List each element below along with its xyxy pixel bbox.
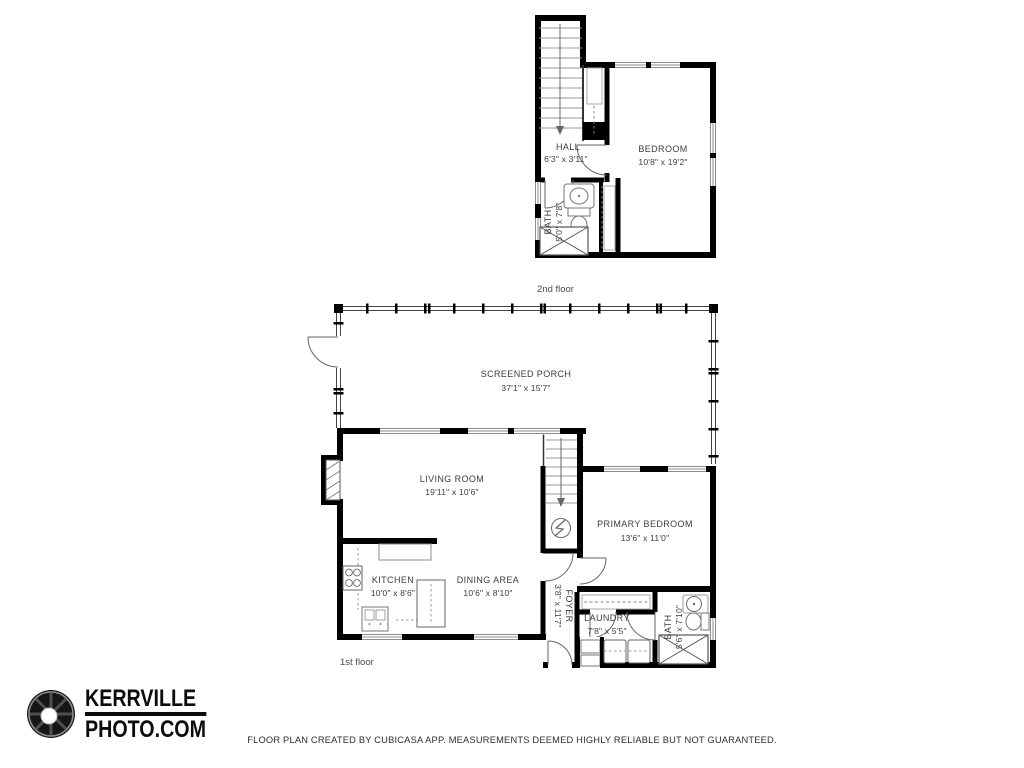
room-label-primary-bedroom: PRIMARY BEDROOM: [597, 519, 693, 529]
room-label-dining-area: DINING AREA: [457, 575, 519, 585]
room-dims-bath2: 5'0" x 7'8": [554, 202, 564, 241]
first-floor-caption: 1st floor: [340, 657, 374, 668]
first-floor-plan: SCREENED PORCH 37'1" x 15'7" LIVING ROOM…: [308, 304, 719, 669]
room-dims-laundry: 7'8" x 5'5": [587, 626, 626, 636]
room-dims-primary-bedroom: 13'6" x 11'0": [621, 533, 670, 543]
second-floor-closet: [602, 186, 615, 250]
room-label-foyer: FOYER: [564, 589, 574, 622]
bedroom-door-arc: [580, 558, 606, 584]
room-label-laundry: LAUNDRY: [584, 613, 630, 623]
foyer-inner-door-arc: [545, 553, 573, 581]
disclaimer-text: FLOOR PLAN CREATED BY CUBICASA APP. MEAS…: [0, 735, 1024, 745]
stairs-down-arrow: [556, 126, 564, 135]
floor-plan-page: BEDROOM 10'8" x 19'2" HALL 6'3" x 3'11" …: [0, 0, 1024, 768]
counter-icon: [379, 544, 431, 560]
room-dims-kitchen: 10'0" x 8'6": [371, 588, 415, 598]
room-label-bath2: BATH: [543, 210, 553, 235]
washer-dryer-icon: [604, 640, 650, 663]
toilet-bowl-icon: [686, 613, 701, 630]
room-dims-bath1: 5'6" x 7'10": [674, 605, 684, 649]
bath-door-arc: [627, 612, 655, 640]
room-dims-bedroom: 10'8" x 19'2": [638, 157, 687, 167]
second-floor-stairs-icon: [539, 24, 602, 136]
room-label-bath1: BATH: [663, 615, 673, 640]
toilet-tank-icon: [701, 613, 709, 630]
entry-door-arc: [548, 641, 572, 665]
room-dims-living-room: 19'11" x 10'6": [425, 487, 479, 497]
room-dims-screened-porch: 37'1" x 15'7": [501, 383, 550, 393]
second-floor-walls: [538, 18, 713, 255]
toilet-tank-icon: [568, 208, 590, 216]
room-label-hall: HALL: [556, 142, 580, 152]
second-floor-caption: 2nd floor: [537, 284, 574, 295]
logo-text: KERRVILLE PHOTO.COM: [85, 687, 233, 742]
room-dims-dining-area: 10'6" x 8'10": [463, 588, 512, 598]
floor-plan-drawing: BEDROOM 10'8" x 19'2" HALL 6'3" x 3'11" …: [0, 0, 1024, 768]
laundry-closet: [582, 595, 650, 609]
room-dims-foyer: 3'8" x 11'7": [553, 584, 563, 628]
second-floor-plan: BEDROOM 10'8" x 19'2" HALL 6'3" x 3'11" …: [535, 18, 717, 295]
logo-line1: KERRVILLE: [85, 687, 206, 716]
entry-steps-icon: [578, 637, 602, 668]
utility-icon: [552, 519, 571, 538]
room-dims-hall: 6'3" x 3'11": [544, 154, 588, 164]
room-label-bedroom: BEDROOM: [638, 144, 687, 154]
porch-door-opening: [335, 336, 342, 368]
room-label-living-room: LIVING ROOM: [420, 474, 484, 484]
first-floor-stairs-icon: [546, 438, 577, 538]
room-label-kitchen: KITCHEN: [372, 575, 414, 585]
room-label-screened-porch: SCREENED PORCH: [481, 369, 572, 379]
fireplace-icon: [326, 460, 340, 500]
porch-door-arc: [308, 337, 338, 367]
